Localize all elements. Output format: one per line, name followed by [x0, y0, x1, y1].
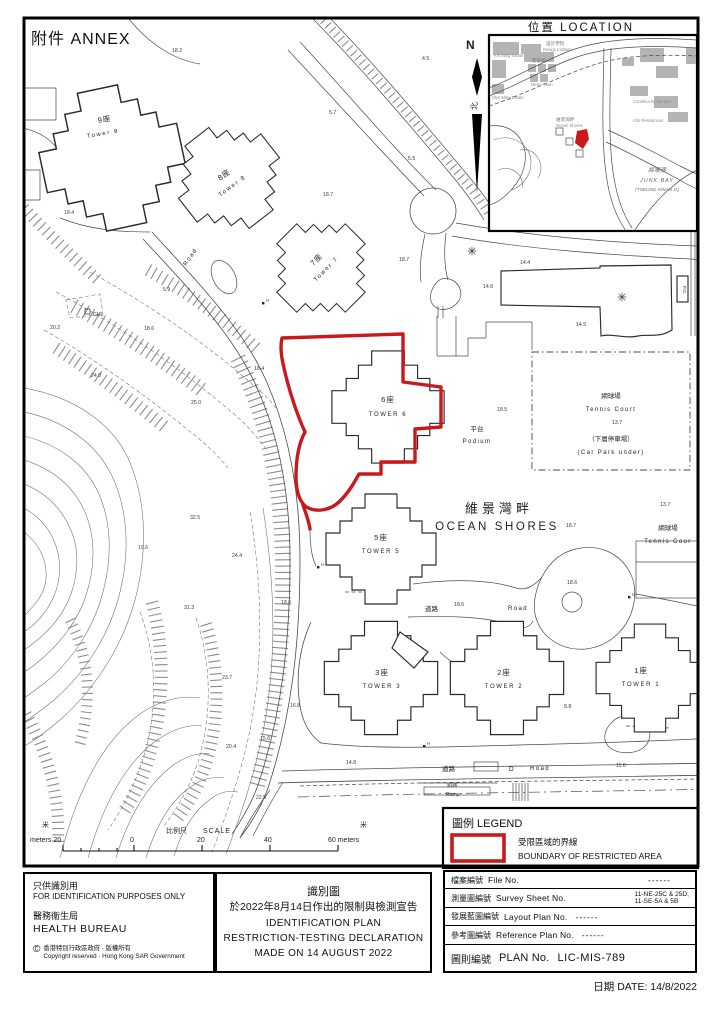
road-label-en: Road — [508, 606, 528, 612]
table-row-layout-plan: 發展藍圖編號 Layout Plan No. ------ — [445, 908, 695, 926]
podium-label-zh: 平台 — [471, 424, 484, 433]
road3-label: Road — [183, 247, 199, 267]
table-row-reference-plan: 參考圖編號 Reference Plan No. ------ — [445, 926, 695, 945]
bureau-en: HEALTH BUREAU — [33, 922, 205, 936]
svg-text:8.8: 8.8 — [564, 704, 571, 710]
plan-title-zh: 識別圖 — [307, 884, 340, 901]
svg-text:H: H — [266, 298, 269, 303]
svg-text:JUNK BAY: JUNK BAY — [639, 178, 674, 184]
svg-text:18.6: 18.6 — [454, 602, 464, 608]
svg-text:5.9: 5.9 — [163, 287, 170, 293]
inset-frame — [489, 35, 697, 231]
scale-bar: 米 meters 20 0 比例尺 SCALE 20 40 60 meters … — [30, 820, 367, 851]
footer-title-box: 識別圖 於2022年8月14日作出的限制與檢測宣告 IDENTIFICATION… — [215, 872, 432, 973]
svg-text:Kin Ming Estate: Kin Ming Estate — [494, 53, 524, 58]
table-row-survey-sheet: 測量圖編號 Survey Sheet No. 11-NE-25C & 25D, … — [445, 889, 695, 908]
tower-1 — [596, 624, 704, 732]
tower-3-label-en: TOWER 3 — [363, 684, 401, 690]
svg-text:14.6: 14.6 — [483, 284, 493, 290]
tennis-court2-label-zh: 網球場 — [658, 523, 678, 532]
tower-6-label-zh: 6座 — [381, 394, 395, 404]
copyright-en: Copyright reserved · Hong Kong SAR Gover… — [43, 953, 184, 961]
svg-text:5.7: 5.7 — [329, 110, 336, 116]
copyright: © 香港特別行政區政府 · 版權所有 Copyright reserved · … — [33, 945, 205, 961]
plan-subtitle-en: RESTRICTION-TESTING DECLARATION — [223, 931, 423, 946]
svg-text:meters 20: meters 20 — [30, 837, 61, 844]
road2-label-zh: 道路 — [442, 764, 456, 773]
svg-text:18.7: 18.7 — [323, 192, 333, 198]
north-arrow: N 北 — [466, 38, 482, 193]
svg-text:22.5: 22.5 — [256, 795, 266, 801]
svg-text:將軍澳: 將軍澳 — [648, 166, 667, 174]
svg-text:都會駅: 都會駅 — [532, 57, 546, 64]
tower-9 — [29, 75, 196, 242]
svg-text:18.6: 18.6 — [144, 326, 154, 332]
legend-title: 圖例 LEGEND — [452, 816, 522, 830]
svg-text:11.6: 11.6 — [616, 763, 626, 769]
svg-text:18.7: 18.7 — [566, 523, 576, 529]
legend-item-en: BOUNDARY OF RESTRICTED AREA — [518, 851, 662, 861]
svg-text:14.8: 14.8 — [346, 760, 356, 766]
tennis-courts — [532, 352, 698, 598]
contour-lines — [24, 272, 276, 858]
tower-2-label-zh: 2座 — [497, 667, 511, 677]
plan-subtitle-zh: 於2022年8月14日作出的限制與檢測宣告 — [230, 900, 418, 916]
svg-text:20.4: 20.4 — [226, 744, 236, 750]
tower-3-label-zh: 3座 — [375, 667, 389, 677]
ramp-label-en: Ramp — [446, 792, 460, 798]
svg-text:14.5: 14.5 — [576, 322, 586, 328]
svg-text:18.7: 18.7 — [399, 257, 409, 263]
tennis-court-label-zh: 網球場 — [601, 391, 621, 400]
svg-text:60 meters: 60 meters — [328, 837, 360, 844]
svg-text:Metro Town: Metro Town — [531, 82, 553, 87]
svg-text:13.7: 13.7 — [660, 502, 670, 508]
svg-text:24.0: 24.0 — [91, 373, 101, 379]
footer-disclaimer-box: 只供識別用 FOR IDENTIFICATION PURPOSES ONLY 醫… — [23, 872, 215, 973]
svg-text:15.6: 15.6 — [260, 736, 270, 742]
svg-text:20.2: 20.2 — [50, 325, 60, 331]
plan-date-en: MADE ON 14 AUGUST 2022 — [254, 946, 392, 961]
road2-label-en: Road — [530, 766, 550, 772]
identification-plan-page: H H H H 9座 Tower 9 8座 Tower 8 7座 Tower 7… — [0, 0, 718, 1014]
north-char: 北 — [470, 102, 479, 110]
estate-name-en: OCEAN SHORES — [435, 521, 559, 533]
estate-name-zh: 維景灣畔 — [465, 501, 533, 516]
roundabout — [410, 188, 456, 234]
location-title: 位置 LOCATION — [528, 20, 634, 34]
svg-text:18.6: 18.6 — [281, 600, 291, 606]
ramp-label-zh: 斜路 — [447, 781, 458, 789]
svg-text:32.5: 32.5 — [190, 515, 200, 521]
carpark-label-en: (Car Park under) — [577, 450, 644, 456]
copyright-zh: 香港特別行政區政府 · 版權所有 — [43, 945, 184, 953]
svg-text:40: 40 — [264, 837, 272, 844]
svg-text:24.4: 24.4 — [232, 553, 242, 559]
cul-label: CUL — [93, 312, 103, 318]
svg-text:SCALE: SCALE — [203, 828, 231, 835]
svg-text:H: H — [321, 562, 324, 567]
road2-label-d: D — [509, 766, 514, 773]
carpark-label-zh: （下層停車場） — [588, 434, 634, 443]
tennis-court-label-en: Tennis Court — [586, 407, 636, 413]
plan-map-canvas: H H H H 9座 Tower 9 8座 Tower 8 7座 Tower 7… — [0, 0, 718, 1014]
svg-text:Alto Residences: Alto Residences — [633, 118, 663, 123]
location-inset-map: 位置 LOCATION — [489, 20, 697, 231]
footer-reference-table: 檔案編號 File No. ------ 測量圖編號 Survey Sheet … — [443, 870, 697, 973]
copyright-icon: © — [33, 945, 40, 955]
tower-1-label-en: TOWER 1 — [622, 682, 660, 688]
svg-text:0: 0 — [130, 837, 134, 844]
svg-text:5.5: 5.5 — [408, 156, 415, 162]
disclaimer-zh: 只供識別用 — [33, 880, 205, 892]
road-label-zh: 道路 — [425, 604, 439, 613]
svg-text:維景灣畔: 維景灣畔 — [556, 116, 575, 123]
svg-text:(TSEUNG KWAN O): (TSEUNG KWAN O) — [635, 187, 679, 193]
slope-hatching — [24, 208, 283, 842]
svg-text:4.5: 4.5 — [422, 56, 429, 62]
tower-5-label-zh: 5座 — [374, 532, 388, 542]
north-label: N — [466, 38, 475, 52]
tower-6-label-en: TOWER 6 — [369, 412, 407, 418]
tower-2 — [450, 621, 563, 734]
legend-boundary-swatch — [452, 835, 504, 861]
svg-text:18.4: 18.4 — [64, 210, 74, 216]
svg-text:25.0: 25.0 — [191, 400, 201, 406]
tower-2-label-en: TOWER 2 — [485, 684, 523, 690]
svg-text:H: H — [632, 592, 635, 597]
tennis-court2-label-en: Tennis Cour — [644, 539, 691, 545]
tower-6 — [332, 351, 444, 463]
svg-text:14.4: 14.4 — [520, 260, 530, 266]
annex-title: 附件 ANNEX — [31, 30, 131, 48]
svg-text:13.7: 13.7 — [612, 420, 622, 426]
svg-text:比例尺: 比例尺 — [166, 826, 187, 835]
svg-text:Corinthia by the Sea: Corinthia by the Sea — [633, 99, 672, 104]
svg-text:18.5: 18.5 — [497, 407, 507, 413]
tower-5-label-en: TOWER 5 — [362, 549, 400, 555]
svg-text:18.2: 18.2 — [172, 48, 182, 54]
svg-text:31.3: 31.3 — [184, 605, 194, 611]
svg-text:20: 20 — [197, 837, 205, 844]
svg-text:Shin Ming Estate: Shin Ming Estate — [492, 95, 524, 100]
po-label: P.O. — [682, 286, 687, 294]
disclaimer-en: FOR IDENTIFICATION PURPOSES ONLY — [33, 892, 205, 903]
podium-block — [501, 265, 672, 337]
tower-1-label-zh: 1座 — [634, 665, 648, 675]
svg-text:16.8: 16.8 — [290, 703, 300, 709]
date-line: 日期 DATE: 14/8/2022 — [430, 979, 697, 994]
plan-title-en: IDENTIFICATION PLAN — [266, 916, 381, 931]
svg-text:米: 米 — [360, 820, 367, 829]
legend: 圖例 LEGEND 受限區域的界線 BOUNDARY OF RESTRICTED… — [443, 808, 698, 868]
svg-text:設計學院: 設計學院 — [546, 40, 565, 47]
table-row-file-no: 檔案編號 File No. ------ — [445, 872, 695, 889]
svg-text:19.6: 19.6 — [138, 545, 148, 551]
legend-item-zh: 受限區域的界線 — [518, 837, 578, 847]
podium-label-en: Podium — [463, 439, 492, 445]
tower-7 — [253, 200, 390, 337]
svg-text:Design Institute: Design Institute — [543, 47, 573, 52]
bureau-zh: 醫務衞生局 — [33, 910, 205, 922]
svg-text:23.7: 23.7 — [222, 675, 232, 681]
svg-text:Ocean Shores: Ocean Shores — [556, 123, 583, 128]
table-row-plan-no: 圖則編號 PLAN No. LIC-MIS-789 — [445, 945, 695, 971]
svg-text:18.6: 18.6 — [567, 580, 577, 586]
svg-text:米: 米 — [42, 820, 49, 829]
tower-3 — [324, 621, 437, 734]
svg-text:18.4: 18.4 — [254, 366, 264, 372]
svg-text:H: H — [427, 741, 430, 746]
